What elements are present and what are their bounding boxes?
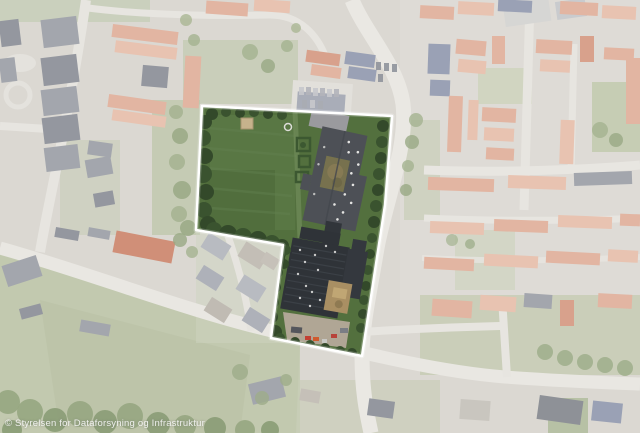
aerial-map-svg [0, 0, 640, 433]
aerial-photo-viewport[interactable]: © Styrelsen for Dataforsyning og Infrast… [0, 0, 640, 433]
